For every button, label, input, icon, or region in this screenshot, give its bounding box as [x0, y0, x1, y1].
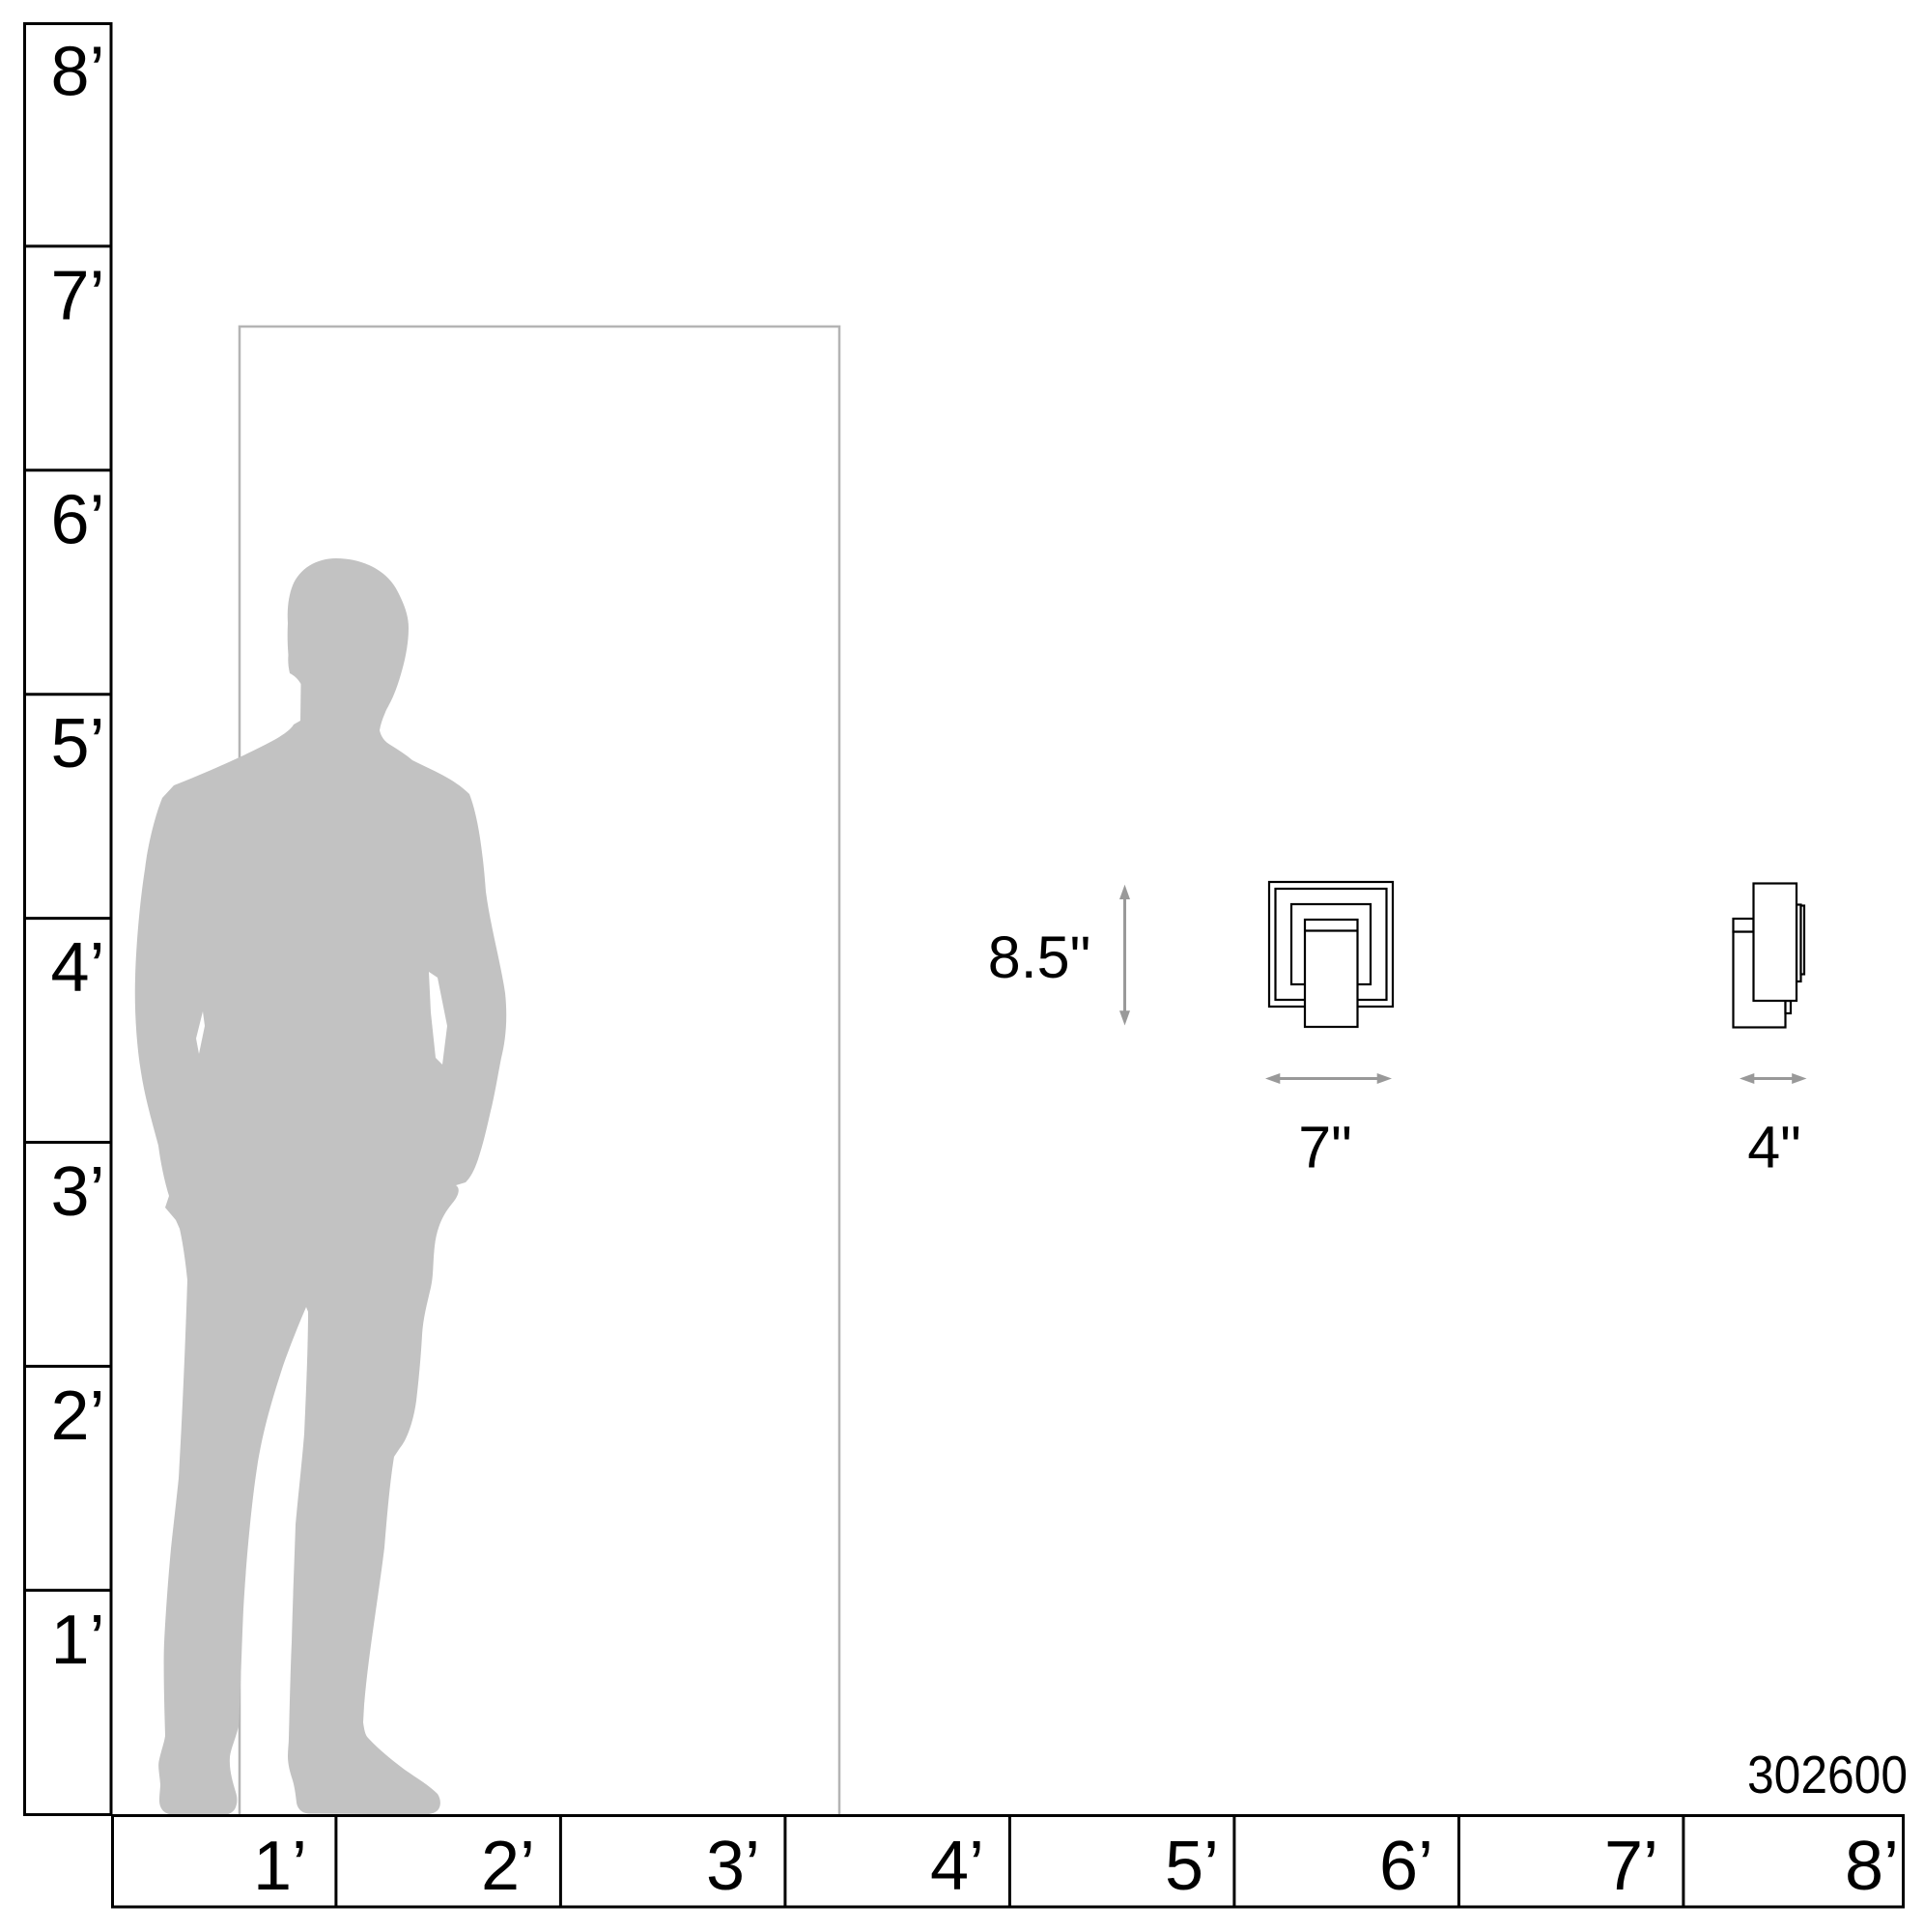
- svg-text:8.5": 8.5": [988, 924, 1090, 990]
- svg-text:302600: 302600: [1747, 1745, 1908, 1804]
- svg-text:5’: 5’: [1165, 1828, 1219, 1905]
- svg-text:7’: 7’: [1604, 1828, 1658, 1905]
- svg-text:5’: 5’: [50, 705, 104, 782]
- svg-text:1’: 1’: [253, 1828, 307, 1905]
- svg-text:4": 4": [1747, 1115, 1801, 1180]
- svg-text:4’: 4’: [930, 1828, 984, 1905]
- svg-text:1’: 1’: [50, 1602, 104, 1679]
- svg-text:6’: 6’: [1379, 1828, 1433, 1905]
- svg-text:6’: 6’: [50, 481, 104, 558]
- svg-text:2’: 2’: [50, 1378, 104, 1455]
- svg-text:3’: 3’: [50, 1153, 104, 1231]
- svg-text:7’: 7’: [50, 257, 104, 334]
- svg-text:8’: 8’: [1845, 1828, 1899, 1905]
- svg-text:8’: 8’: [50, 34, 104, 111]
- svg-text:4’: 4’: [50, 929, 104, 1007]
- svg-text:3’: 3’: [706, 1828, 760, 1905]
- svg-text:2’: 2’: [481, 1828, 535, 1905]
- svg-text:7": 7": [1298, 1115, 1352, 1180]
